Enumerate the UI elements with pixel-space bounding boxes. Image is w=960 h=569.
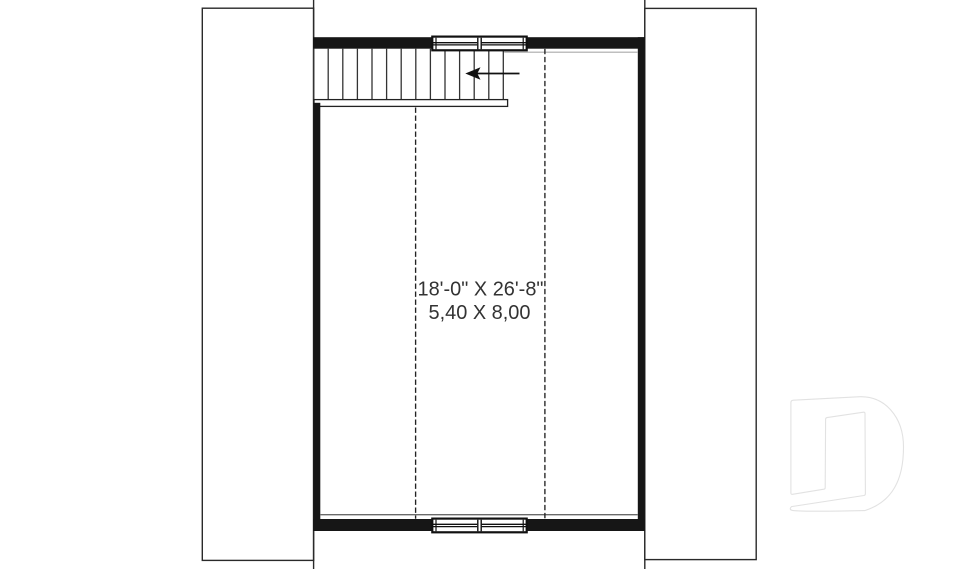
svg-text:18'-0" X 26'-8": 18'-0" X 26'-8" — [418, 278, 544, 301]
svg-text:5,40 X 8,00: 5,40 X 8,00 — [429, 301, 531, 324]
